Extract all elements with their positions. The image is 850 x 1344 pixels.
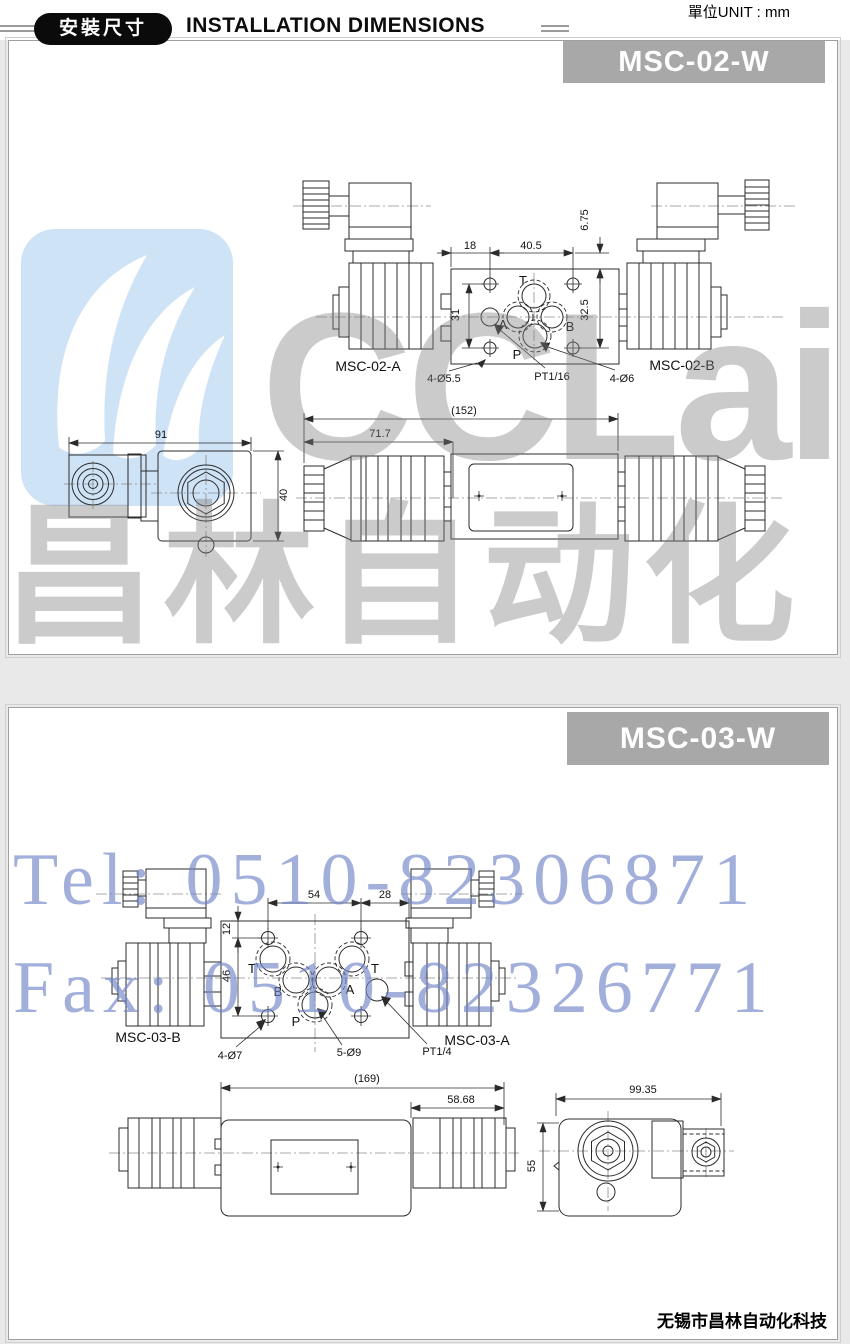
datasheet-page: 單位UNIT : mm 安裝尺寸 INSTALLATION DIMENSIONS…: [0, 0, 850, 1344]
dimensions: [537, 1093, 721, 1211]
unit-name-right: MSC-03-A: [444, 1032, 510, 1048]
port-label-t2: T: [371, 961, 379, 976]
dim-label: 6.75: [579, 209, 591, 230]
unit-label: 單位UNIT : mm: [688, 1, 790, 22]
model-banner-msc02: MSC-02-W: [563, 41, 825, 83]
model-banner-msc03: MSC-03-W: [567, 712, 829, 765]
port-label-a: A: [499, 317, 508, 332]
unit-name-left: MSC-02-A: [335, 358, 401, 374]
port-label-a: A: [346, 982, 355, 997]
header-rule-right: [541, 25, 569, 32]
note-mount-holes: 4-Ø5.5: [427, 373, 461, 385]
dim-label: (169): [354, 1073, 380, 1085]
port-label-b: B: [274, 984, 283, 999]
note-port-holes: 5-Ø9: [337, 1047, 361, 1059]
msc03-top-view-drawing: 54 28 12 46 T B A T P 4-Ø7 5-Ø9 PT1/4 MS…: [86, 856, 531, 1071]
assembly: [304, 454, 765, 541]
dim-label: 58.68: [447, 1094, 475, 1106]
valve-body: [451, 269, 619, 364]
msc03-side-view-drawing: 99.35 55: [529, 1066, 789, 1231]
dim-label: 54: [308, 889, 320, 901]
msc02-top-view-drawing: 18 40.5 6.75 32.5 31 T A B P 4-Ø5.5 PT1/…: [291, 163, 806, 398]
dim-label: (152): [451, 405, 477, 417]
company-name: 无锡市昌林自动化科技: [657, 1307, 827, 1332]
unit-name-left: MSC-03-B: [115, 1029, 180, 1045]
assembly: [119, 1118, 515, 1216]
body: [69, 451, 251, 553]
dim-label: 46: [221, 970, 233, 982]
panel-msc03: MSC-03-W Tel: 0510-82306871 Fax: 0510-82…: [8, 707, 838, 1340]
note-thread: PT1/16: [534, 371, 569, 383]
note-pin-holes: 4-Ø6: [610, 373, 634, 385]
dim-label: 18: [464, 240, 476, 252]
unit-name-right: MSC-02-B: [649, 357, 714, 373]
dim-label: 71.7: [369, 428, 390, 440]
dim-label: 55: [526, 1160, 538, 1172]
port-label-b: B: [566, 319, 575, 334]
port-label-t: T: [519, 273, 527, 288]
dim-label: 99.35: [629, 1084, 657, 1096]
right-solenoid: [619, 180, 769, 349]
panel-msc02: MSC-02-W CCLair 昌林自动化: [8, 40, 838, 655]
port-label-t1: T: [248, 961, 256, 976]
dim-label: 32.5: [579, 299, 591, 320]
dim-label: 28: [379, 889, 391, 901]
dim-label: 12: [221, 923, 233, 935]
dim-label: 91: [155, 429, 167, 441]
msc03-front-view-drawing: (169) 58.68: [109, 1063, 529, 1223]
port-label-p: P: [513, 347, 522, 362]
msc02-side-view-drawing: 91 40: [56, 421, 316, 581]
msc02-front-view-drawing: (152) 71.7: [294, 399, 794, 559]
right-solenoid: [405, 869, 505, 1026]
dim-label: 40: [278, 489, 290, 501]
section-badge: 安裝尺寸: [34, 13, 172, 45]
dimensions: [232, 898, 427, 1047]
dim-label: 31: [450, 309, 462, 321]
dim-label: 40.5: [520, 240, 541, 252]
page-title: INSTALLATION DIMENSIONS: [186, 14, 485, 38]
body: [554, 1119, 724, 1216]
centerlines: [64, 455, 261, 557]
left-solenoid: [112, 869, 221, 1026]
note-mount-holes: 4-Ø7: [218, 1050, 242, 1062]
port-label-p: P: [292, 1014, 301, 1029]
